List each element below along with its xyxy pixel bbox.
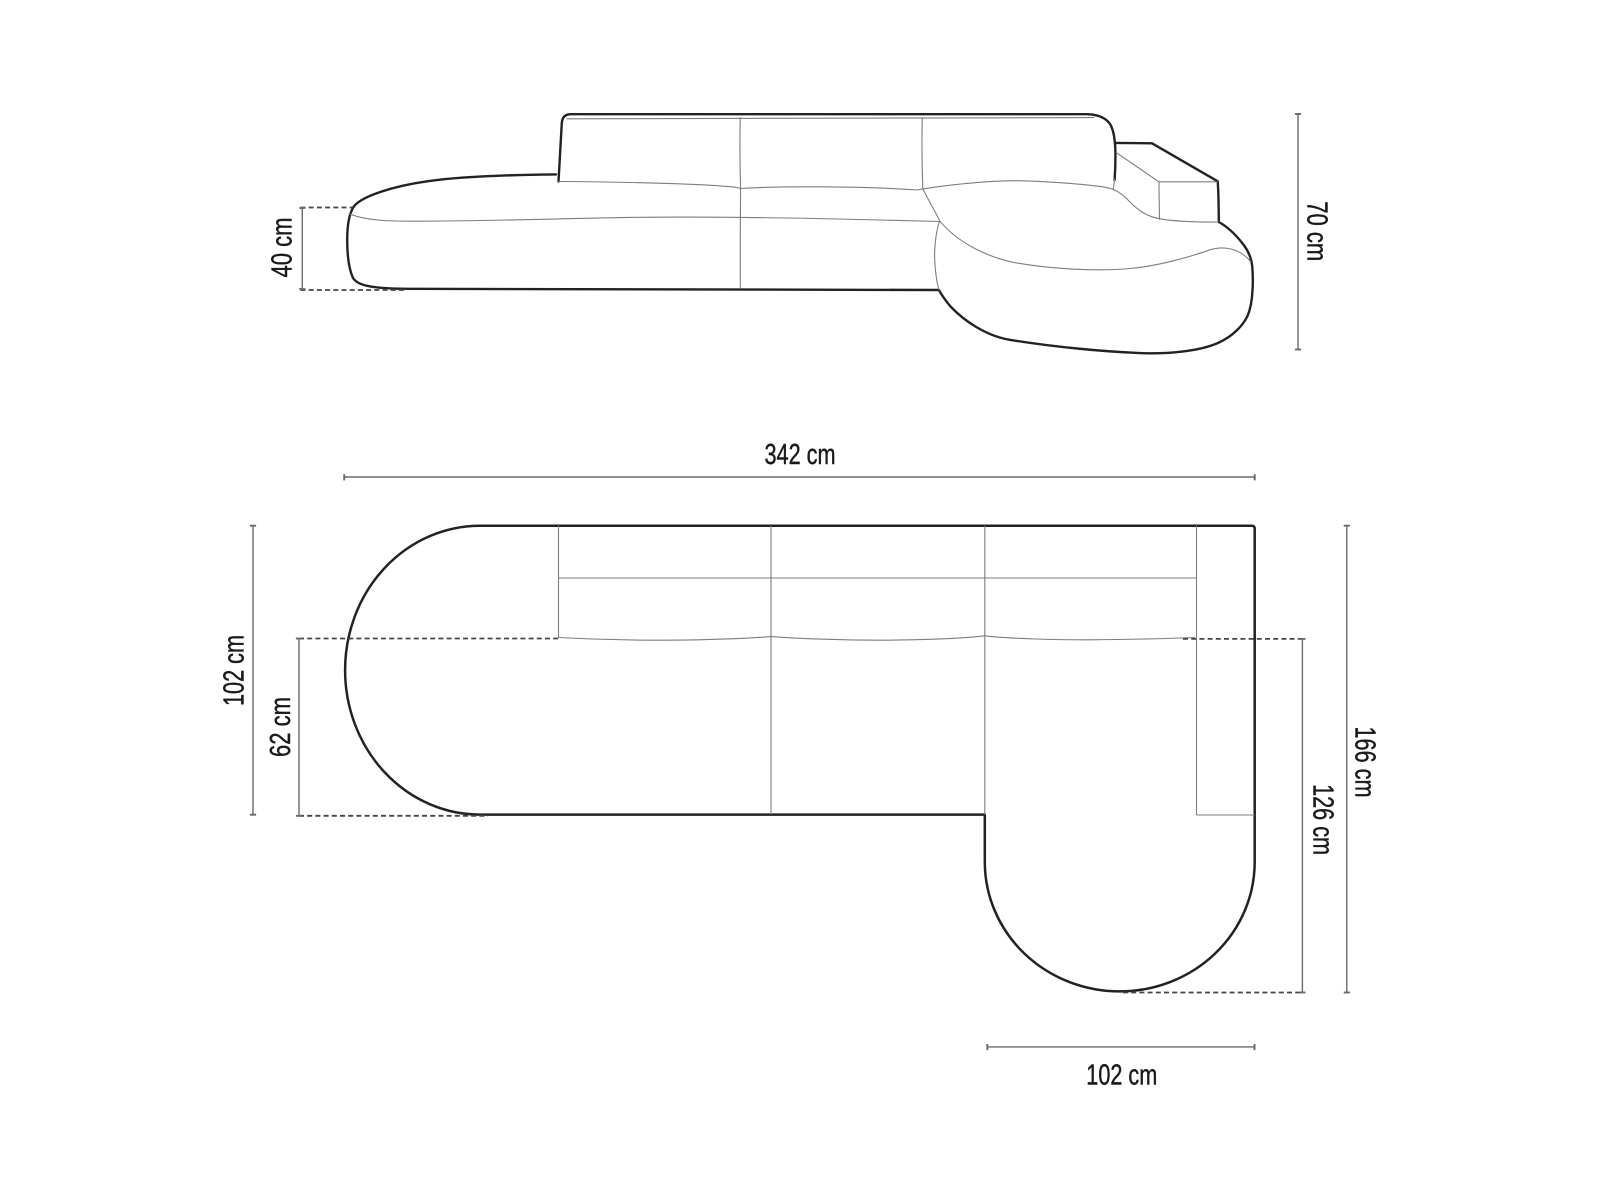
svg-text:62 cm: 62 cm xyxy=(265,697,297,757)
svg-text:342 cm: 342 cm xyxy=(765,439,836,471)
svg-text:126 cm: 126 cm xyxy=(1306,784,1338,855)
svg-text:40 cm: 40 cm xyxy=(267,218,299,278)
svg-text:102 cm: 102 cm xyxy=(1086,1059,1157,1091)
svg-text:102 cm: 102 cm xyxy=(218,635,250,706)
svg-text:166 cm: 166 cm xyxy=(1349,727,1381,798)
svg-text:70 cm: 70 cm xyxy=(1301,201,1333,261)
